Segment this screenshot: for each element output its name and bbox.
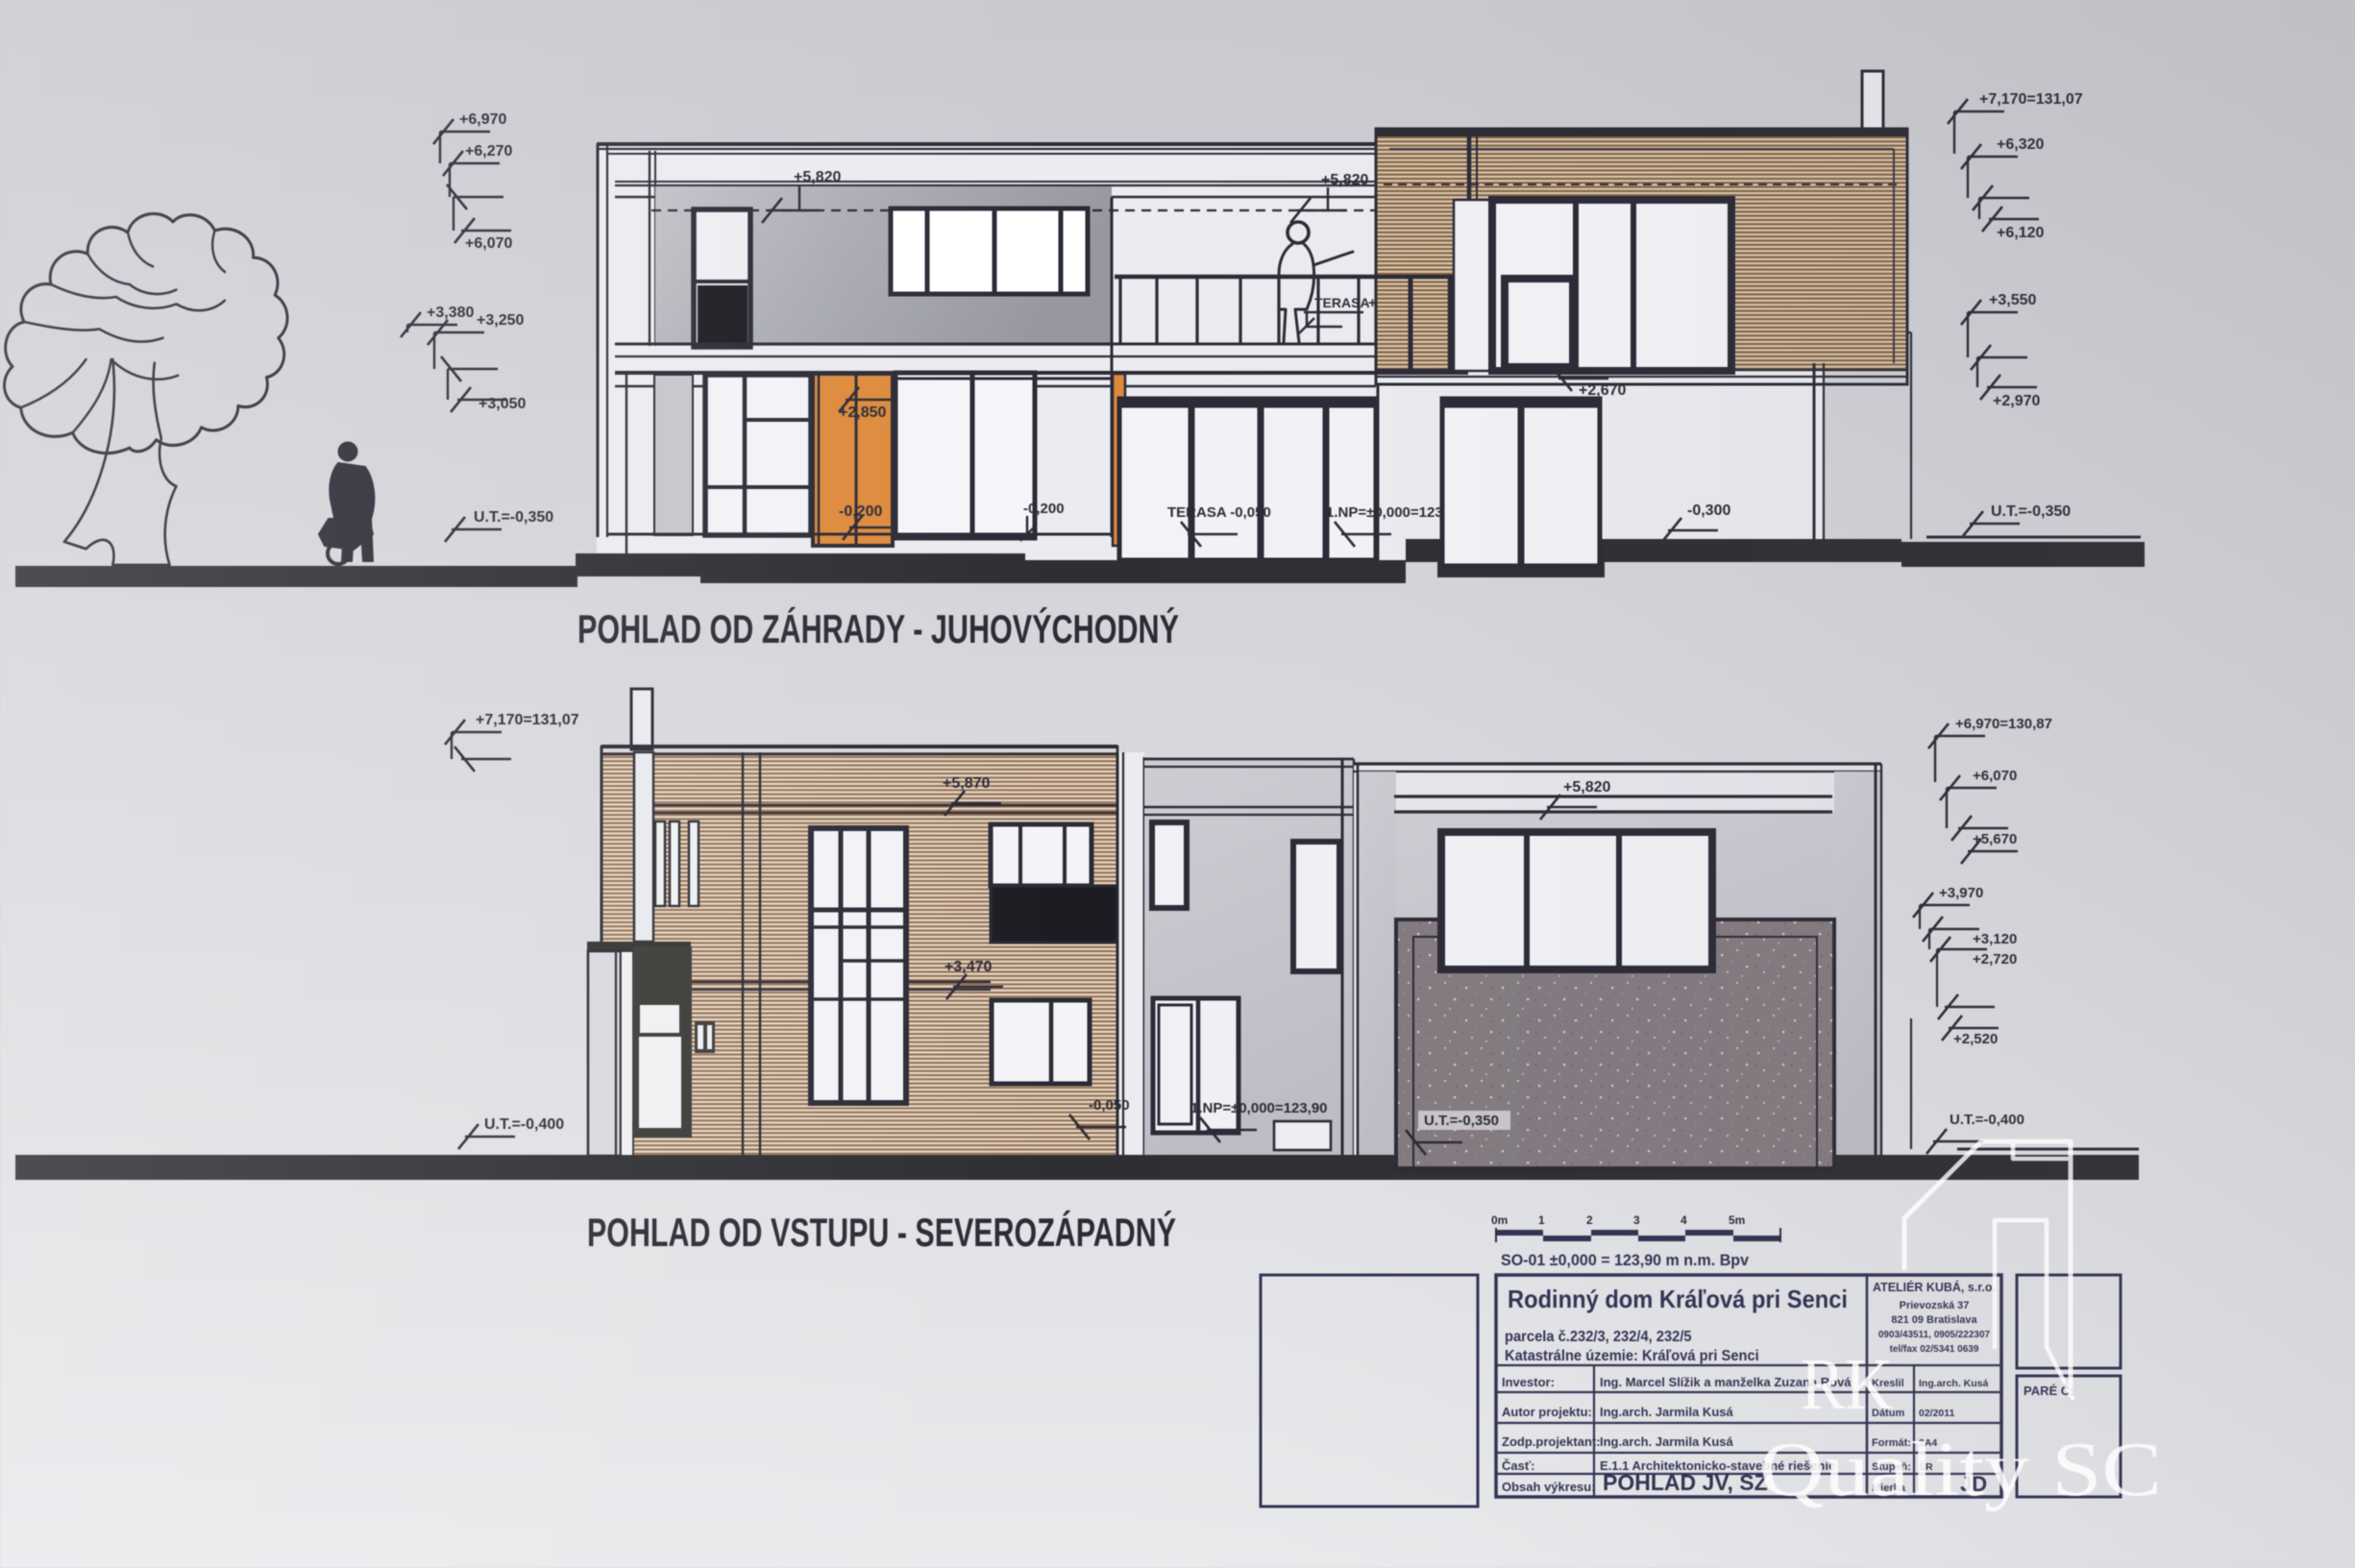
svg-text:RK: RK [1801, 1344, 1893, 1425]
svg-text:Quality SC: Quality SC [1759, 1428, 2162, 1512]
